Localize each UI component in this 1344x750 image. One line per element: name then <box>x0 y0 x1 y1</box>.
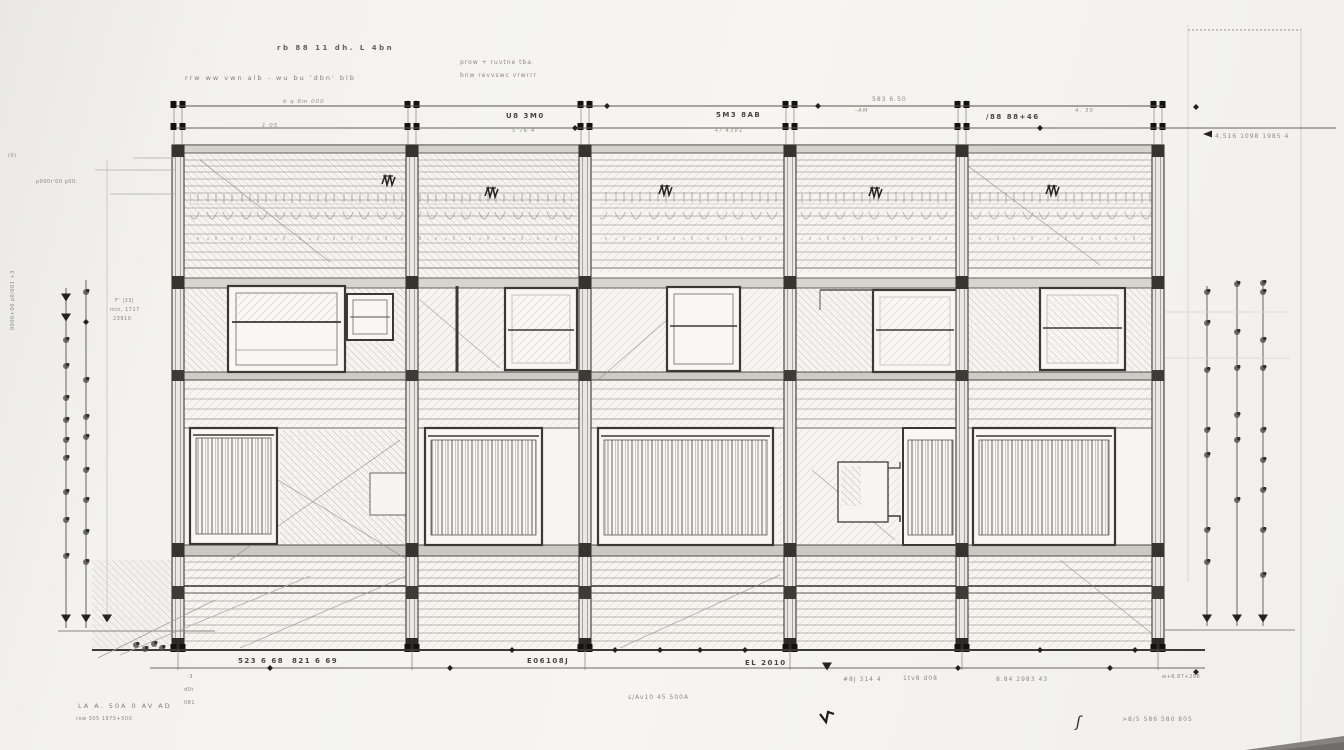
column <box>578 100 593 670</box>
window-upper-6 <box>1040 288 1125 370</box>
dim-label: 5 76 4 <box>512 128 536 134</box>
dimension-right <box>1165 280 1295 630</box>
dim-label: 523 6 68 <box>238 657 284 665</box>
dim-label: E06108J <box>527 657 569 665</box>
drawing-sheet: rb 88 11 dh. L 4bn rrw ww vwn alb - wu b… <box>0 0 1344 750</box>
column <box>171 100 186 670</box>
dim-label: #8J 314 4 <box>843 676 882 683</box>
dim-label: EL 2010 <box>745 659 787 667</box>
window-upper-4 <box>667 287 740 371</box>
left-note: (0) <box>8 153 17 159</box>
window-upper-3 <box>505 288 577 370</box>
dim-label: /88 88+46 <box>986 113 1040 121</box>
left-note: p000r'00 p00. <box>36 179 78 185</box>
window-lower-1 <box>190 428 277 544</box>
dim-label: 8.84 2983 43 <box>996 676 1048 683</box>
dim-label: 1tv8 d08 <box>903 675 938 682</box>
tick-note: -3 <box>187 674 193 680</box>
window-lower-3 <box>598 428 773 545</box>
column <box>955 100 970 670</box>
window-upper-2 <box>347 294 393 340</box>
dim-label: 5M3 8AB <box>716 111 761 119</box>
left-note: F' |33| <box>115 298 134 304</box>
dim-label: 821 6 69 <box>292 657 338 665</box>
bottom-note: LA A. 50A 0 AV AD <box>78 702 172 710</box>
column <box>783 100 798 670</box>
note-small-2: bnw revvswc vrwrrr <box>460 72 537 79</box>
dim-arrow-left <box>1203 131 1212 138</box>
dim-label: s/Av10 45 500A <box>628 694 689 701</box>
building-elevation <box>92 100 1166 670</box>
tick-note: 081 <box>184 700 195 706</box>
dim-label: b q 8m 000 <box>283 99 325 105</box>
pencil-hatching <box>92 153 1162 648</box>
window-upper-1 <box>228 286 345 372</box>
window-lower-2 <box>425 428 542 545</box>
bottom-note: row 305 1975+500 <box>76 716 132 722</box>
column <box>1151 100 1166 670</box>
dim-label: >8/5 586 580 805 <box>1122 716 1193 723</box>
dim-label: -AM <box>855 108 869 114</box>
left-note-vertical: 0000+00 p0/001 +3 <box>10 270 16 330</box>
left-note: 23910 <box>113 316 131 322</box>
dim-label: U8 3M0 <box>506 112 545 120</box>
dim-label: 1 05 <box>262 123 278 129</box>
dim-label: 4. 35 <box>1075 108 1094 114</box>
note-sub: rrw ww vwn alb - wu bu 'dbn' blb <box>185 74 356 82</box>
window-lower-4 <box>903 428 958 545</box>
window-lower-5 <box>973 428 1115 545</box>
pen-scribble-mark <box>820 712 834 722</box>
dim-label: w+8.87+298 <box>1162 674 1200 680</box>
column <box>405 100 420 670</box>
note-title: rb 88 11 dh. L 4bn <box>277 44 394 52</box>
utility-box <box>370 473 410 515</box>
tick-note: d0t <box>184 687 194 693</box>
dim-label: 583 6.50 <box>872 96 907 103</box>
dim-label: 4,516 1098 1985 4 <box>1215 133 1289 140</box>
elevation-drawing: rb 88 11 dh. L 4bn rrw ww vwn alb - wu b… <box>0 0 1344 750</box>
note-small-1: prow + ruvtne tba. <box>460 59 535 66</box>
brace-mark: ʃ <box>1074 713 1083 731</box>
left-note: min, 1717 <box>110 307 140 313</box>
dim-label: +/ 43V1 <box>714 128 743 134</box>
